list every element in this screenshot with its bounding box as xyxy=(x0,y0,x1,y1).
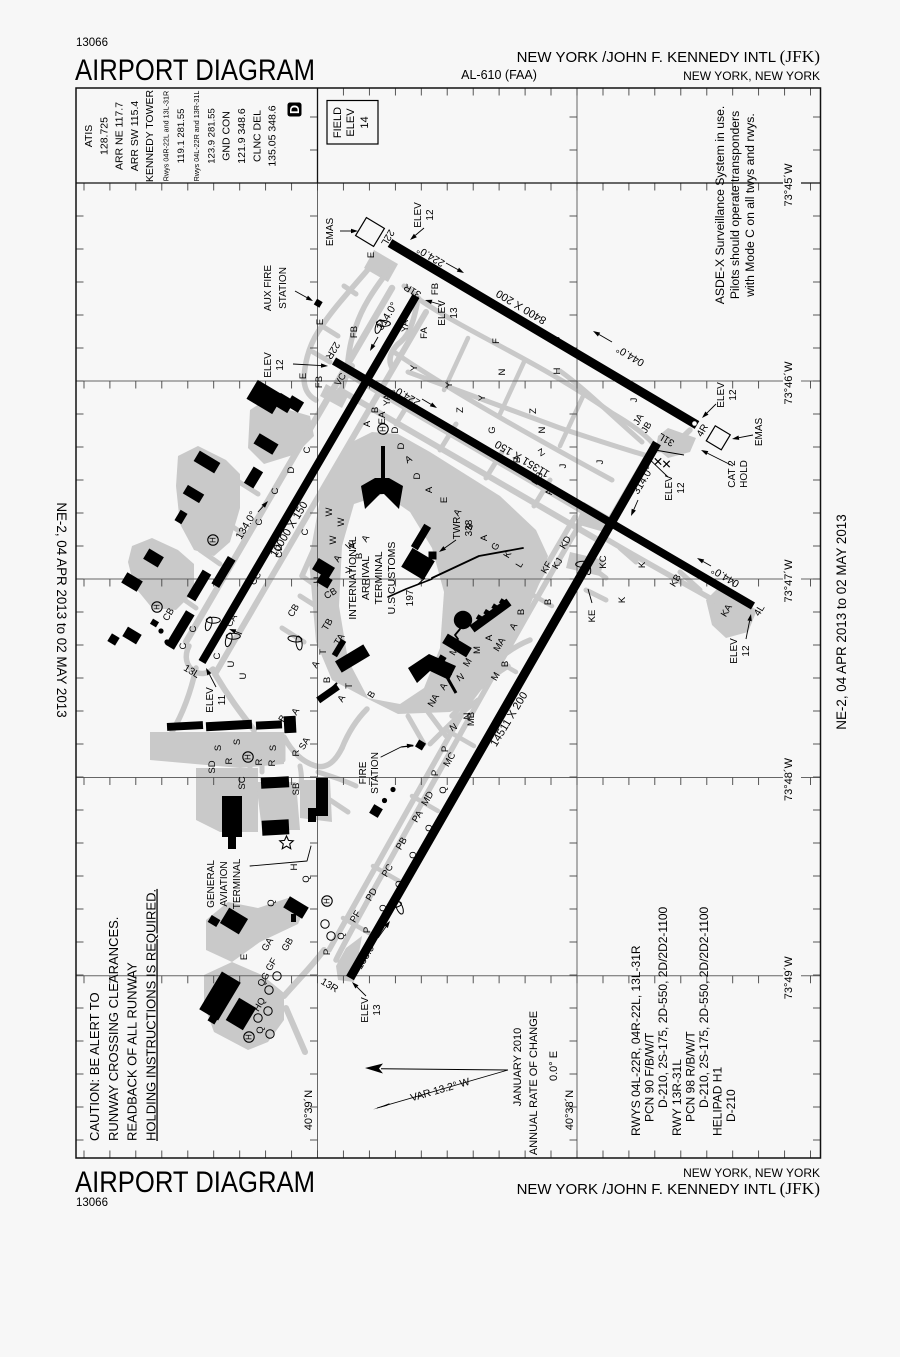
svg-text:W: W xyxy=(336,517,347,526)
svg-text:ANNUAL RATE OF CHANGE: ANNUAL RATE OF CHANGE xyxy=(528,1011,540,1155)
svg-text:J: J xyxy=(595,459,606,464)
svg-text:V: V xyxy=(344,566,355,573)
svg-text:C: C xyxy=(188,625,199,632)
svg-text:Y: Y xyxy=(409,364,420,371)
svg-text:STATION: STATION xyxy=(278,267,289,309)
svg-text:Q: Q xyxy=(394,880,405,887)
svg-text:RWYS 04L-22R, 04R-22L, 13L-31R: RWYS 04L-22R, 04R-22L, 13L-31R xyxy=(629,945,643,1136)
svg-text:A: A xyxy=(479,534,490,541)
svg-text:73°47´W: 73°47´W xyxy=(783,559,795,603)
svg-text:13: 13 xyxy=(449,307,460,319)
svg-text:ELEV: ELEV xyxy=(360,997,371,1023)
svg-text:H: H xyxy=(209,537,218,543)
svg-text:128.725: 128.725 xyxy=(98,117,110,155)
svg-text:RUNWAY CROSSING CLEARANCES.: RUNWAY CROSSING CLEARANCES. xyxy=(106,917,121,1141)
svg-text:FIELD: FIELD xyxy=(332,107,344,138)
svg-text:D: D xyxy=(396,442,407,449)
svg-text:D: D xyxy=(288,105,302,114)
svg-text:E: E xyxy=(439,497,450,503)
svg-text:Q: Q xyxy=(438,786,449,793)
svg-text:12: 12 xyxy=(741,645,752,657)
svg-text:HELIPAD H1: HELIPAD H1 xyxy=(711,1067,725,1136)
svg-text:C: C xyxy=(212,652,223,659)
svg-text:U: U xyxy=(312,576,323,583)
svg-text:Q: Q xyxy=(408,851,419,858)
svg-text:TWR: TWR xyxy=(452,517,463,540)
svg-text:FIRE: FIRE xyxy=(358,761,369,784)
svg-text:H: H xyxy=(379,426,388,432)
svg-text:B: B xyxy=(322,677,333,683)
svg-text:C: C xyxy=(270,487,281,494)
svg-text:P: P xyxy=(322,949,333,955)
svg-text:C: C xyxy=(178,642,189,649)
svg-text:FB: FB xyxy=(430,283,441,295)
svg-text:FA: FA xyxy=(419,327,430,339)
svg-text:Q: Q xyxy=(301,875,312,882)
svg-text:J: J xyxy=(612,377,623,382)
svg-text:N: N xyxy=(444,668,455,675)
svg-text:KC: KC xyxy=(598,555,609,568)
svg-text:D: D xyxy=(412,472,423,479)
svg-text:123.9 281.55: 123.9 281.55 xyxy=(206,108,217,163)
svg-text:13066: 13066 xyxy=(76,37,108,49)
svg-text:EMAS: EMAS xyxy=(325,218,336,247)
svg-text:Pilots should operate transpon: Pilots should operate transponders xyxy=(728,111,742,299)
svg-text:B: B xyxy=(516,609,527,615)
svg-text:J: J xyxy=(629,397,640,402)
svg-text:121.9 348.6: 121.9 348.6 xyxy=(236,108,248,164)
svg-text:12: 12 xyxy=(425,209,436,221)
svg-text:K: K xyxy=(617,596,628,603)
svg-text:Q: Q xyxy=(378,904,389,911)
svg-text:G: G xyxy=(487,426,498,433)
svg-text:W: W xyxy=(328,535,339,544)
svg-text:N: N xyxy=(537,426,548,433)
svg-text:11: 11 xyxy=(217,694,228,705)
svg-text:G: G xyxy=(552,336,563,343)
svg-text:Q: Q xyxy=(424,824,435,831)
svg-text:14: 14 xyxy=(359,116,371,128)
svg-text:A: A xyxy=(484,634,495,641)
svg-text:A: A xyxy=(544,488,555,495)
svg-text:12: 12 xyxy=(275,359,286,371)
svg-text:Z: Z xyxy=(528,408,539,414)
svg-text:READBACK OF ALL RUNWAY: READBACK OF ALL RUNWAY xyxy=(125,962,140,1141)
svg-text:SD: SD xyxy=(207,760,218,773)
svg-text:SB: SB xyxy=(291,783,302,796)
svg-text:ARR NE 117.7: ARR NE 117.7 xyxy=(114,102,126,170)
svg-text:119.1 281.55: 119.1 281.55 xyxy=(176,109,187,164)
svg-text:NEW YORK /JOHN F. KENNEDY INTL: NEW YORK /JOHN F. KENNEDY INTL (JFK) xyxy=(517,47,820,66)
svg-text:PCN 98 R/B/W/T: PCN 98 R/B/W/T xyxy=(683,1031,697,1122)
svg-text:U: U xyxy=(226,660,237,667)
svg-text:TERMINAL: TERMINAL xyxy=(373,551,385,604)
svg-text:RWY 13R-31L: RWY 13R-31L xyxy=(670,1059,684,1136)
svg-text:FB: FB xyxy=(314,376,325,388)
svg-text:CLNC DEL: CLNC DEL xyxy=(251,110,263,162)
svg-text:Q: Q xyxy=(336,932,347,939)
svg-text:B: B xyxy=(500,661,511,667)
svg-text:TERMINAL: TERMINAL xyxy=(232,858,243,909)
svg-text:ARR SW 115.4: ARR SW 115.4 xyxy=(129,101,141,172)
svg-text:W: W xyxy=(324,507,335,516)
svg-text:D: D xyxy=(286,466,297,473)
svg-text:R: R xyxy=(254,758,265,765)
svg-text:P: P xyxy=(362,927,373,933)
svg-text:NE-2, 04 APR 2013 to 02 MAY 20: NE-2, 04 APR 2013 to 02 MAY 2013 xyxy=(834,514,849,729)
svg-text:HOLD: HOLD xyxy=(739,460,750,488)
svg-text:J: J xyxy=(558,463,569,468)
svg-text:Q: Q xyxy=(266,899,277,906)
svg-text:JANUARY 2010: JANUARY 2010 xyxy=(512,1028,524,1106)
svg-text:C: C xyxy=(300,528,311,535)
svg-text:U: U xyxy=(238,672,249,679)
svg-text:H: H xyxy=(245,1034,254,1040)
svg-text:ELEV: ELEV xyxy=(716,382,727,408)
svg-text:H: H xyxy=(244,754,253,760)
svg-text:S: S xyxy=(268,745,279,751)
svg-text:AUX FIRE: AUX FIRE xyxy=(263,265,274,311)
svg-text:73°48´W: 73°48´W xyxy=(783,757,795,801)
svg-text:AIRPORT DIAGRAM: AIRPORT DIAGRAM xyxy=(75,54,315,87)
svg-text:AIRPORT DIAGRAM: AIRPORT DIAGRAM xyxy=(75,1166,315,1199)
svg-text:D-210, 2S-175, 2D-550, 2D/2D2-: D-210, 2S-175, 2D-550, 2D/2D2-1100 xyxy=(697,906,711,1108)
svg-text:D: D xyxy=(390,426,401,433)
svg-text:AVIATION: AVIATION xyxy=(219,861,230,906)
svg-text:E: E xyxy=(315,319,326,325)
svg-text:GENERAL: GENERAL xyxy=(206,860,217,908)
svg-text:P: P xyxy=(430,770,441,776)
svg-text:R: R xyxy=(267,759,278,766)
svg-text:135.05 348.6: 135.05 348.6 xyxy=(267,105,279,166)
svg-text:D-210: D-210 xyxy=(724,1089,738,1122)
svg-text:PCN 90 F/B/W/T: PCN 90 F/B/W/T xyxy=(643,1032,657,1122)
svg-text:CAUTION: BE ALERT TO: CAUTION: BE ALERT TO xyxy=(87,992,102,1141)
svg-text:D-210, 2S-175, 2D-550, 2D/2D2-: D-210, 2S-175, 2D-550, 2D/2D2-1100 xyxy=(656,906,670,1108)
svg-text:ELEV: ELEV xyxy=(729,638,740,664)
svg-text:R: R xyxy=(291,749,302,756)
svg-text:N: N xyxy=(497,368,508,375)
svg-text:ELEV: ELEV xyxy=(345,108,357,137)
svg-text:Y: Y xyxy=(444,381,455,388)
svg-text:ATIS: ATIS xyxy=(83,125,95,148)
svg-text:NEW YORK, NEW YORK: NEW YORK, NEW YORK xyxy=(683,1166,820,1180)
svg-text:ELEV: ELEV xyxy=(205,687,216,713)
svg-text:NEW YORK, NEW YORK: NEW YORK, NEW YORK xyxy=(683,69,820,83)
svg-text:KE: KE xyxy=(587,610,598,623)
svg-text:T: T xyxy=(344,683,355,689)
svg-text:12: 12 xyxy=(676,482,687,494)
svg-text:M: M xyxy=(472,646,483,654)
svg-text:E: E xyxy=(239,954,250,960)
svg-text:13: 13 xyxy=(372,1004,383,1016)
svg-text:SC: SC xyxy=(237,776,248,789)
svg-text:Y: Y xyxy=(477,394,488,401)
svg-text:S: S xyxy=(213,745,224,751)
svg-text:HOLDING INSTRUCTIONS IS REQUIR: HOLDING INSTRUCTIONS IS REQUIRED. xyxy=(143,889,158,1141)
svg-text:Rwys 04L-22R and 13R-31L: Rwys 04L-22R and 13R-31L xyxy=(192,91,201,182)
svg-text:ASDE-X Surveillance System in: ASDE-X Surveillance System in use. xyxy=(713,106,727,304)
svg-text:S: S xyxy=(232,739,243,745)
svg-text:YA: YA xyxy=(400,319,411,332)
svg-text:GND CON: GND CON xyxy=(221,111,233,161)
svg-text:A: A xyxy=(424,486,435,493)
svg-text:U.S CUSTOMS: U.S CUSTOMS xyxy=(386,542,398,615)
svg-text:40°39´N: 40°39´N xyxy=(303,1090,315,1131)
svg-text:K: K xyxy=(637,561,648,568)
svg-text:Rwys 04R-22L and 13L-31R: Rwys 04R-22L and 13L-31R xyxy=(162,91,171,181)
svg-text:ELEV: ELEV xyxy=(413,202,424,228)
svg-text:73°46´W: 73°46´W xyxy=(783,361,795,405)
svg-text:12: 12 xyxy=(728,389,739,401)
svg-text:B: B xyxy=(512,457,523,463)
svg-text:C: C xyxy=(254,518,265,525)
svg-text:ELEV: ELEV xyxy=(664,475,675,501)
svg-text:EMAS: EMAS xyxy=(754,418,765,447)
svg-text:ELEV: ELEV xyxy=(263,352,274,378)
svg-text:B: B xyxy=(543,599,554,605)
svg-text:CD: CD xyxy=(274,544,285,558)
svg-text:Z: Z xyxy=(455,407,466,413)
svg-text:R: R xyxy=(224,757,235,764)
svg-text:NE-2, 04 APR 2013 to 02 MAY 20: NE-2, 04 APR 2013 to 02 MAY 2013 xyxy=(54,502,69,717)
svg-text:STATION: STATION xyxy=(370,752,381,794)
svg-text:H: H xyxy=(323,898,332,904)
svg-text:H: H xyxy=(153,604,162,610)
svg-text:13066: 13066 xyxy=(76,1197,108,1209)
svg-text:NEW YORK /JOHN F. KENNEDY INTL: NEW YORK /JOHN F. KENNEDY INTL (JFK) xyxy=(517,1179,820,1198)
svg-text:F: F xyxy=(491,338,502,344)
svg-text:FB: FB xyxy=(349,326,360,338)
svg-text:AL-610 (FAA): AL-610 (FAA) xyxy=(461,68,537,82)
svg-text:ARRIVAL: ARRIVAL xyxy=(360,556,372,600)
svg-text:C: C xyxy=(302,446,313,453)
svg-text:40°38´N: 40°38´N xyxy=(564,1090,576,1131)
svg-text:N: N xyxy=(462,712,473,719)
svg-text:E: E xyxy=(366,252,377,258)
svg-text:A: A xyxy=(362,420,373,427)
svg-text:KENNEDY TOWER: KENNEDY TOWER xyxy=(144,89,156,182)
svg-text:T: T xyxy=(318,649,329,655)
svg-text:H: H xyxy=(552,367,563,374)
svg-text:H: H xyxy=(289,863,300,870)
svg-text:0.0° E: 0.0° E xyxy=(548,1051,560,1081)
svg-text:YA: YA xyxy=(382,393,393,406)
svg-text:Q: Q xyxy=(255,1026,266,1033)
svg-text:73°49´W: 73°49´W xyxy=(783,956,795,1000)
svg-text:with Mode C on all twys and rw: with Mode C on all twys and rwys. xyxy=(743,113,757,298)
svg-text:197: 197 xyxy=(405,589,416,606)
svg-text:73°45´W: 73°45´W xyxy=(783,163,795,207)
svg-text:B: B xyxy=(354,553,365,559)
svg-text:E: E xyxy=(298,373,309,379)
svg-text:B: B xyxy=(370,407,381,413)
